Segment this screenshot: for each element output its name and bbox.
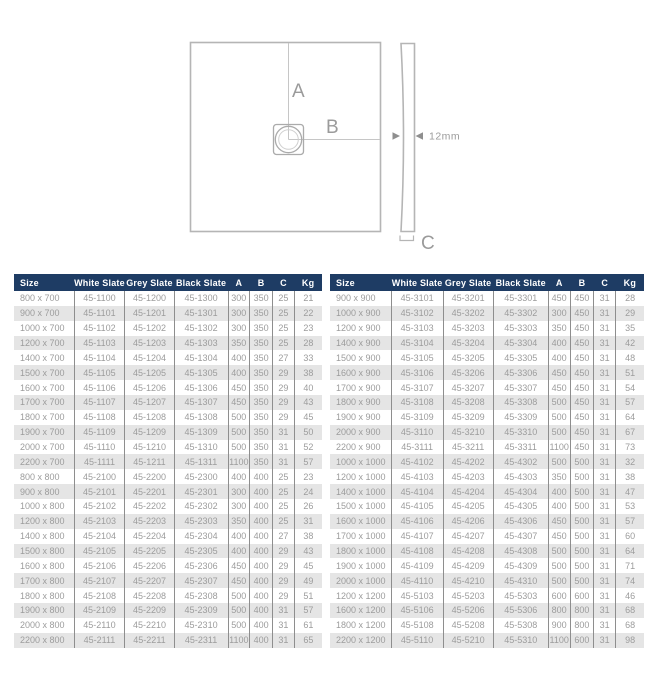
table-cell: 31 bbox=[594, 529, 616, 544]
column-header-a: A bbox=[548, 274, 570, 291]
table-cell: 45-1309 bbox=[174, 425, 228, 440]
table-cell: 400 bbox=[250, 588, 273, 603]
table-cell: 48 bbox=[616, 350, 644, 365]
table-cell: 350 bbox=[250, 440, 273, 455]
column-header-b: B bbox=[250, 274, 273, 291]
table-cell: 400 bbox=[228, 529, 250, 544]
table-cell: 350 bbox=[250, 380, 273, 395]
table-cell: 45-4303 bbox=[493, 469, 548, 484]
table-cell: 73 bbox=[616, 440, 644, 455]
table-row: 1900 x 70045-110945-120945-1309500350315… bbox=[14, 425, 322, 440]
table-cell: 350 bbox=[548, 321, 570, 336]
table-cell: 45-3308 bbox=[493, 395, 548, 410]
table-cell: 45-2308 bbox=[174, 588, 228, 603]
table-cell: 47 bbox=[616, 484, 644, 499]
table-cell: 450 bbox=[570, 395, 594, 410]
table-cell: 45-2304 bbox=[174, 529, 228, 544]
size-cell: 1800 x 800 bbox=[14, 588, 74, 603]
table-cell: 500 bbox=[570, 544, 594, 559]
table-cell: 45-3206 bbox=[443, 365, 493, 380]
table-cell: 500 bbox=[570, 484, 594, 499]
table-cell: 500 bbox=[570, 573, 594, 588]
table-cell: 45-2210 bbox=[125, 618, 174, 633]
table-cell: 31 bbox=[594, 336, 616, 351]
table-cell: 45-2208 bbox=[125, 588, 174, 603]
table-cell: 45-2207 bbox=[125, 573, 174, 588]
table-cell: 500 bbox=[548, 454, 570, 469]
table-cell: 45-2303 bbox=[174, 514, 228, 529]
table-row: 1200 x 80045-210345-220345-2303350400253… bbox=[14, 514, 322, 529]
thickness-label: 12mm bbox=[429, 131, 460, 143]
table-cell: 31 bbox=[594, 454, 616, 469]
column-header-kg: Kg bbox=[616, 274, 644, 291]
table-cell: 38 bbox=[294, 365, 322, 380]
table-row: 2000 x 80045-211045-221045-2310500400316… bbox=[14, 618, 322, 633]
table-cell: 45-3301 bbox=[493, 291, 548, 306]
column-header-black-slate: Black Slate bbox=[174, 274, 228, 291]
table-cell: 400 bbox=[250, 469, 273, 484]
size-cell: 1400 x 800 bbox=[14, 529, 74, 544]
size-cell: 2000 x 700 bbox=[14, 440, 74, 455]
table-cell: 45-3101 bbox=[391, 291, 443, 306]
table-row: 2000 x 100045-411045-421045-431050050031… bbox=[330, 573, 644, 588]
table-cell: 29 bbox=[273, 395, 295, 410]
table-cell: 45-5110 bbox=[391, 633, 443, 648]
table-cell: 450 bbox=[570, 440, 594, 455]
table-cell: 45-5208 bbox=[443, 618, 493, 633]
table-row: 1400 x 100045-410445-420445-430440050031… bbox=[330, 484, 644, 499]
table-cell: 45-5310 bbox=[493, 633, 548, 648]
table-row: 1600 x 90045-310645-320645-3306450450315… bbox=[330, 365, 644, 380]
dimension-label-b: B bbox=[326, 117, 339, 138]
table-row: 1800 x 90045-310845-320845-3308500450315… bbox=[330, 395, 644, 410]
table-cell: 400 bbox=[228, 469, 250, 484]
table-cell: 45-3302 bbox=[493, 306, 548, 321]
table-cell: 45-2201 bbox=[125, 484, 174, 499]
table-cell: 45-5306 bbox=[493, 603, 548, 618]
size-cell: 1700 x 800 bbox=[14, 573, 74, 588]
table-cell: 45-3201 bbox=[443, 291, 493, 306]
table-cell: 45-1310 bbox=[174, 440, 228, 455]
table-cell: 45-3109 bbox=[391, 410, 443, 425]
column-header-kg: Kg bbox=[294, 274, 322, 291]
table-cell: 45-3311 bbox=[493, 440, 548, 455]
table-cell: 350 bbox=[250, 291, 273, 306]
table-cell: 45-2302 bbox=[174, 499, 228, 514]
table-cell: 45-1102 bbox=[74, 321, 125, 336]
table-cell: 25 bbox=[273, 499, 295, 514]
size-cell: 2200 x 1200 bbox=[330, 633, 391, 648]
table-cell: 500 bbox=[228, 618, 250, 633]
table-cell: 45-4309 bbox=[493, 558, 548, 573]
table-cell: 400 bbox=[250, 499, 273, 514]
table-cell: 45-1206 bbox=[125, 380, 174, 395]
thickness-arrow-left-icon bbox=[393, 132, 401, 140]
size-cell: 1600 x 1000 bbox=[330, 514, 391, 529]
table-cell: 45-4202 bbox=[443, 454, 493, 469]
table-cell: 45-2309 bbox=[174, 603, 228, 618]
table-cell: 45 bbox=[294, 558, 322, 573]
table-cell: 45-1104 bbox=[74, 350, 125, 365]
table-cell: 450 bbox=[570, 365, 594, 380]
table-cell: 27 bbox=[273, 350, 295, 365]
table-cell: 50 bbox=[294, 425, 322, 440]
table-cell: 500 bbox=[548, 573, 570, 588]
table-cell: 500 bbox=[548, 558, 570, 573]
table-cell: 25 bbox=[273, 321, 295, 336]
table-cell: 31 bbox=[594, 380, 616, 395]
table-cell: 45-2205 bbox=[125, 544, 174, 559]
table-cell: 350 bbox=[250, 350, 273, 365]
size-cell: 1000 x 900 bbox=[330, 306, 391, 321]
table-cell: 45-3103 bbox=[391, 321, 443, 336]
table-cell: 45-2107 bbox=[74, 573, 125, 588]
table-cell: 28 bbox=[616, 291, 644, 306]
table-cell: 45-3104 bbox=[391, 336, 443, 351]
table-row: 1600 x 100045-410645-420645-430645050031… bbox=[330, 514, 644, 529]
table-cell: 53 bbox=[616, 499, 644, 514]
table-cell: 60 bbox=[616, 529, 644, 544]
table-row: 2200 x 80045-211145-221145-2311110040031… bbox=[14, 633, 322, 648]
table-cell: 29 bbox=[273, 380, 295, 395]
column-header-grey-slate: Grey Slate bbox=[443, 274, 493, 291]
table-cell: 45-2104 bbox=[74, 529, 125, 544]
tray-diagram-svg: A B 12mm C bbox=[0, 0, 658, 262]
size-cell: 1000 x 1000 bbox=[330, 454, 391, 469]
size-cell: 900 x 800 bbox=[14, 484, 74, 499]
table-cell: 45-4210 bbox=[443, 573, 493, 588]
table-cell: 26 bbox=[294, 499, 322, 514]
table-row: 1700 x 80045-210745-220745-2307450400294… bbox=[14, 573, 322, 588]
table-cell: 450 bbox=[548, 380, 570, 395]
size-cell: 1200 x 700 bbox=[14, 336, 74, 351]
table-cell: 45-3209 bbox=[443, 410, 493, 425]
table-cell: 31 bbox=[594, 440, 616, 455]
table-cell: 45-4104 bbox=[391, 484, 443, 499]
table-cell: 45-4102 bbox=[391, 454, 443, 469]
table-cell: 45-1202 bbox=[125, 321, 174, 336]
table-cell: 45-3102 bbox=[391, 306, 443, 321]
column-header-white-slate: White Slate bbox=[391, 274, 443, 291]
table-cell: 45-2102 bbox=[74, 499, 125, 514]
size-cell: 1800 x 900 bbox=[330, 395, 391, 410]
table-cell: 33 bbox=[294, 350, 322, 365]
size-cell: 2200 x 900 bbox=[330, 440, 391, 455]
table-cell: 31 bbox=[594, 544, 616, 559]
table-cell: 450 bbox=[228, 573, 250, 588]
table-cell: 29 bbox=[273, 410, 295, 425]
size-cell: 1500 x 800 bbox=[14, 544, 74, 559]
table-cell: 45-1311 bbox=[174, 454, 228, 469]
table-cell: 45-1111 bbox=[74, 454, 125, 469]
table-cell: 45-3306 bbox=[493, 365, 548, 380]
table-cell: 46 bbox=[616, 588, 644, 603]
table-cell: 45-3207 bbox=[443, 380, 493, 395]
table-cell: 45-2109 bbox=[74, 603, 125, 618]
table-cell: 450 bbox=[570, 380, 594, 395]
table-cell: 45-4203 bbox=[443, 469, 493, 484]
table-cell: 31 bbox=[594, 603, 616, 618]
table-cell: 45-1305 bbox=[174, 365, 228, 380]
table-cell: 45-4106 bbox=[391, 514, 443, 529]
table-cell: 450 bbox=[570, 291, 594, 306]
column-header-size: Size bbox=[14, 274, 74, 291]
table-cell: 31 bbox=[594, 350, 616, 365]
table-cell: 42 bbox=[616, 336, 644, 351]
table-row: 1500 x 100045-410545-420545-430540050031… bbox=[330, 499, 644, 514]
table-cell: 500 bbox=[228, 440, 250, 455]
table-cell: 38 bbox=[294, 529, 322, 544]
column-header-white-slate: White Slate bbox=[74, 274, 125, 291]
table-cell: 400 bbox=[228, 365, 250, 380]
table-cell: 45-4108 bbox=[391, 544, 443, 559]
table-cell: 45-1210 bbox=[125, 440, 174, 455]
table-cell: 98 bbox=[616, 633, 644, 648]
table-cell: 45-3202 bbox=[443, 306, 493, 321]
tray-dimension-diagram: A B 12mm C bbox=[0, 0, 658, 262]
table-cell: 29 bbox=[273, 573, 295, 588]
table-row: 1500 x 70045-110545-120545-1305400350293… bbox=[14, 365, 322, 380]
table-cell: 800 bbox=[570, 618, 594, 633]
table-cell: 45-5206 bbox=[443, 603, 493, 618]
table-cell: 45-1208 bbox=[125, 410, 174, 425]
table-cell: 45-2103 bbox=[74, 514, 125, 529]
table-cell: 40 bbox=[294, 380, 322, 395]
table-cell: 500 bbox=[228, 410, 250, 425]
table-cell: 25 bbox=[273, 306, 295, 321]
table-cell: 45-4304 bbox=[493, 484, 548, 499]
table-row: 1500 x 90045-310545-320545-3305400450314… bbox=[330, 350, 644, 365]
table-cell: 45-2110 bbox=[74, 618, 125, 633]
table-cell: 45-1103 bbox=[74, 336, 125, 351]
table-cell: 450 bbox=[228, 380, 250, 395]
size-cell: 1400 x 900 bbox=[330, 336, 391, 351]
table-cell: 31 bbox=[594, 321, 616, 336]
table-cell: 29 bbox=[273, 365, 295, 380]
table-row: 2200 x 70045-111145-121145-1311110035031… bbox=[14, 454, 322, 469]
table-cell: 31 bbox=[594, 499, 616, 514]
table-cell: 45-4107 bbox=[391, 529, 443, 544]
table-cell: 300 bbox=[228, 306, 250, 321]
table-cell: 45-4110 bbox=[391, 573, 443, 588]
table-row: 900 x 70045-110145-120145-13013003502522 bbox=[14, 306, 322, 321]
table-cell: 31 bbox=[594, 306, 616, 321]
table-cell: 31 bbox=[594, 633, 616, 648]
table-cell: 45-3210 bbox=[443, 425, 493, 440]
table-cell: 400 bbox=[250, 573, 273, 588]
table-row: 1000 x 100045-410245-420245-430250050031… bbox=[330, 454, 644, 469]
size-cell: 1800 x 700 bbox=[14, 410, 74, 425]
table-cell: 800 bbox=[570, 603, 594, 618]
table-cell: 45-1105 bbox=[74, 365, 125, 380]
dimension-label-c: C bbox=[421, 233, 435, 254]
table-cell: 45-1302 bbox=[174, 321, 228, 336]
table-cell: 500 bbox=[570, 469, 594, 484]
table-cell: 45-3309 bbox=[493, 410, 548, 425]
table-cell: 400 bbox=[548, 499, 570, 514]
size-cell: 1000 x 700 bbox=[14, 321, 74, 336]
table-cell: 68 bbox=[616, 618, 644, 633]
size-cell: 1900 x 700 bbox=[14, 425, 74, 440]
table-cell: 43 bbox=[294, 544, 322, 559]
size-cell: 1900 x 900 bbox=[330, 410, 391, 425]
table-cell: 45-1101 bbox=[74, 306, 125, 321]
table-cell: 1100 bbox=[228, 454, 250, 469]
table-cell: 400 bbox=[250, 603, 273, 618]
table-cell: 350 bbox=[548, 469, 570, 484]
size-cell: 800 x 700 bbox=[14, 291, 74, 306]
table-cell: 400 bbox=[548, 484, 570, 499]
table-cell: 57 bbox=[616, 395, 644, 410]
table-cell: 29 bbox=[273, 544, 295, 559]
table-cell: 45-2203 bbox=[125, 514, 174, 529]
table-cell: 400 bbox=[250, 514, 273, 529]
column-header-c: C bbox=[273, 274, 295, 291]
table-cell: 500 bbox=[548, 395, 570, 410]
table-cell: 31 bbox=[594, 395, 616, 410]
table-cell: 45-5103 bbox=[391, 588, 443, 603]
table-cell: 45-4208 bbox=[443, 544, 493, 559]
table-cell: 500 bbox=[570, 454, 594, 469]
table-cell: 57 bbox=[616, 514, 644, 529]
table-cell: 300 bbox=[548, 306, 570, 321]
table-cell: 45-1211 bbox=[125, 454, 174, 469]
size-cell: 2200 x 800 bbox=[14, 633, 74, 648]
tray-top-view-outline bbox=[191, 43, 381, 232]
table-row: 1700 x 100045-410745-420745-430745050031… bbox=[330, 529, 644, 544]
table-cell: 45-1204 bbox=[125, 350, 174, 365]
size-cell: 1000 x 800 bbox=[14, 499, 74, 514]
table-cell: 45-3303 bbox=[493, 321, 548, 336]
table-cell: 500 bbox=[548, 544, 570, 559]
table-cell: 31 bbox=[594, 410, 616, 425]
table-cell: 29 bbox=[616, 306, 644, 321]
table-cell: 45-4204 bbox=[443, 484, 493, 499]
column-header-black-slate: Black Slate bbox=[493, 274, 548, 291]
table-cell: 45-5108 bbox=[391, 618, 443, 633]
table-row: 1000 x 70045-110245-120245-1302300350252… bbox=[14, 321, 322, 336]
table-cell: 45-4305 bbox=[493, 499, 548, 514]
column-header-c: C bbox=[594, 274, 616, 291]
table-cell: 45-5308 bbox=[493, 618, 548, 633]
table-cell: 31 bbox=[273, 425, 295, 440]
table-cell: 31 bbox=[273, 618, 295, 633]
table-cell: 31 bbox=[294, 514, 322, 529]
table-cell: 45-4209 bbox=[443, 558, 493, 573]
table-cell: 45-1205 bbox=[125, 365, 174, 380]
table-row: 1800 x 120045-510845-520845-530890080031… bbox=[330, 618, 644, 633]
table-cell: 400 bbox=[228, 544, 250, 559]
size-cell: 1800 x 1200 bbox=[330, 618, 391, 633]
spec-sheet-page: A B 12mm C SizeWhite SlateGrey SlateBlac… bbox=[0, 0, 658, 675]
table-cell: 45-2311 bbox=[174, 633, 228, 648]
table-cell: 450 bbox=[548, 529, 570, 544]
table-cell: 45-4310 bbox=[493, 573, 548, 588]
tray-side-profile bbox=[401, 44, 415, 232]
table-cell: 51 bbox=[294, 588, 322, 603]
table-cell: 67 bbox=[616, 425, 644, 440]
table-cell: 45-3203 bbox=[443, 321, 493, 336]
table-row: 1600 x 70045-110645-120645-1306450350294… bbox=[14, 380, 322, 395]
table-cell: 45-3107 bbox=[391, 380, 443, 395]
table-cell: 51 bbox=[616, 365, 644, 380]
table-cell: 45-1307 bbox=[174, 395, 228, 410]
table-cell: 400 bbox=[548, 336, 570, 351]
size-cell: 2000 x 900 bbox=[330, 425, 391, 440]
table-cell: 45-1303 bbox=[174, 336, 228, 351]
table-cell: 45-2211 bbox=[125, 633, 174, 648]
table-row: 1800 x 80045-210845-220845-2308500400295… bbox=[14, 588, 322, 603]
table-cell: 500 bbox=[228, 588, 250, 603]
table-cell: 45-2307 bbox=[174, 573, 228, 588]
table-cell: 450 bbox=[570, 321, 594, 336]
table-cell: 45-2300 bbox=[174, 469, 228, 484]
table-cell: 31 bbox=[594, 425, 616, 440]
table-cell: 45-1207 bbox=[125, 395, 174, 410]
table-cell: 45-3305 bbox=[493, 350, 548, 365]
table-cell: 57 bbox=[294, 454, 322, 469]
table-cell: 400 bbox=[250, 484, 273, 499]
column-header-a: A bbox=[228, 274, 250, 291]
table-cell: 45-4302 bbox=[493, 454, 548, 469]
table-cell: 31 bbox=[594, 484, 616, 499]
table-cell: 300 bbox=[228, 484, 250, 499]
table-row: 1900 x 90045-310945-320945-3309500450316… bbox=[330, 410, 644, 425]
table-cell: 35 bbox=[616, 321, 644, 336]
table-cell: 350 bbox=[250, 395, 273, 410]
table-cell: 45-5203 bbox=[443, 588, 493, 603]
table-cell: 350 bbox=[228, 336, 250, 351]
table-cell: 29 bbox=[273, 588, 295, 603]
table-cell: 45-2111 bbox=[74, 633, 125, 648]
table-cell: 65 bbox=[294, 633, 322, 648]
size-cell: 1600 x 900 bbox=[330, 365, 391, 380]
table-cell: 64 bbox=[616, 544, 644, 559]
table-row: 1900 x 80045-210945-220945-2309500400315… bbox=[14, 603, 322, 618]
table-cell: 45-2206 bbox=[125, 558, 174, 573]
table-row: 1200 x 70045-110345-120345-1303350350252… bbox=[14, 336, 322, 351]
thickness-arrow-right-icon bbox=[416, 132, 424, 140]
table-cell: 500 bbox=[570, 514, 594, 529]
table-cell: 45 bbox=[294, 410, 322, 425]
table-cell: 45-4308 bbox=[493, 544, 548, 559]
size-cell: 1900 x 800 bbox=[14, 603, 74, 618]
column-header-grey-slate: Grey Slate bbox=[125, 274, 174, 291]
table-cell: 45-2108 bbox=[74, 588, 125, 603]
table-row: 1800 x 100045-410845-420845-430850050031… bbox=[330, 544, 644, 559]
dimension-label-a: A bbox=[292, 81, 305, 102]
table-cell: 25 bbox=[273, 484, 295, 499]
table-cell: 64 bbox=[616, 410, 644, 425]
table-row: 1200 x 100045-410345-420345-430335050031… bbox=[330, 469, 644, 484]
table-cell: 800 bbox=[548, 603, 570, 618]
table-cell: 31 bbox=[273, 454, 295, 469]
table-cell: 22 bbox=[294, 306, 322, 321]
table-cell: 45-4206 bbox=[443, 514, 493, 529]
table-cell: 450 bbox=[228, 558, 250, 573]
table-cell: 45-2209 bbox=[125, 603, 174, 618]
size-cell: 1900 x 1000 bbox=[330, 558, 391, 573]
table-cell: 450 bbox=[548, 514, 570, 529]
table-cell: 450 bbox=[570, 306, 594, 321]
table-cell: 1100 bbox=[548, 440, 570, 455]
table-row: 900 x 90045-310145-320145-33014504503128 bbox=[330, 291, 644, 306]
table-cell: 300 bbox=[228, 499, 250, 514]
table-cell: 25 bbox=[273, 291, 295, 306]
table-cell: 400 bbox=[250, 618, 273, 633]
table-cell: 23 bbox=[294, 469, 322, 484]
size-cell: 1600 x 800 bbox=[14, 558, 74, 573]
